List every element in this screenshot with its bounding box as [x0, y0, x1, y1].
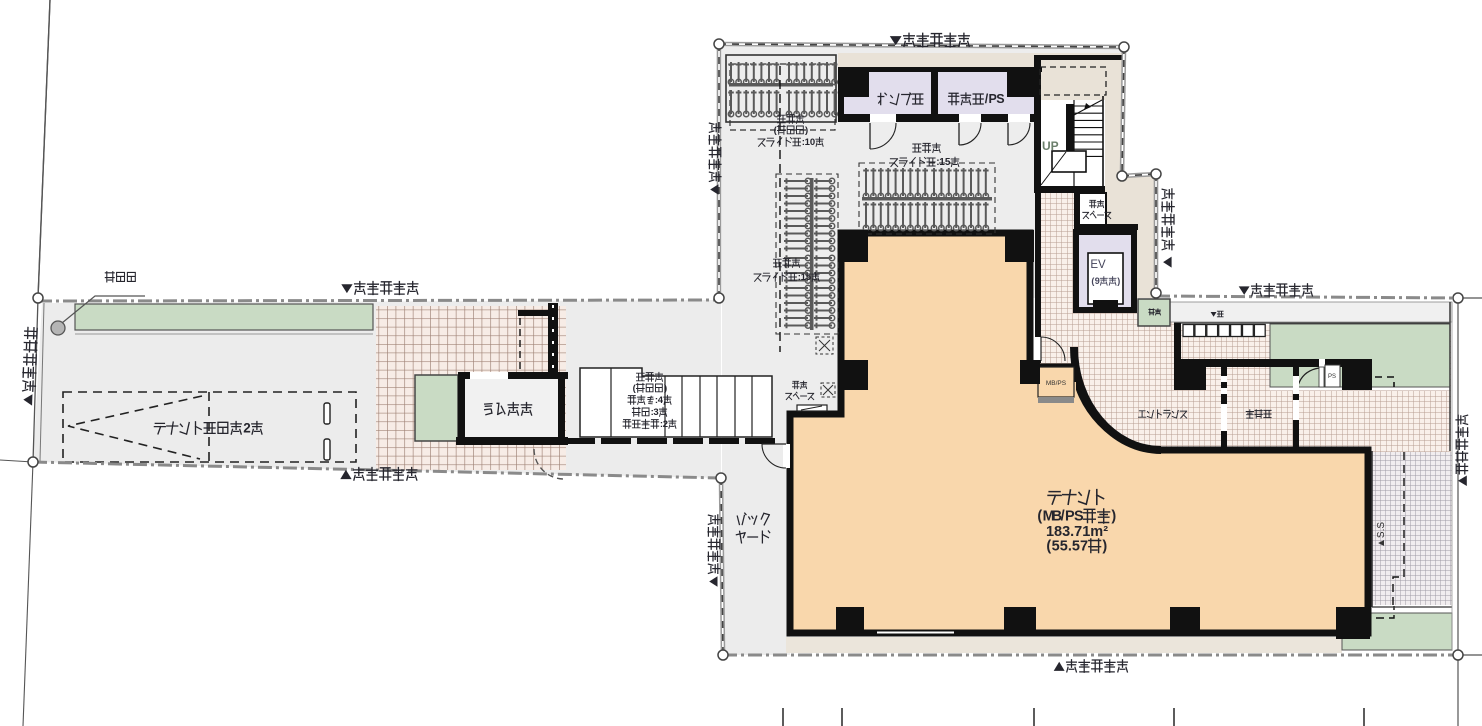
svg-text:5: 5 — [945, 157, 951, 168]
svg-text:5: 5 — [806, 272, 812, 283]
svg-text:5: 5 — [1072, 539, 1080, 555]
svg-text:3: 3 — [653, 407, 658, 418]
svg-text:7: 7 — [1080, 539, 1088, 555]
svg-text:MB/PS: MB/PS — [1046, 380, 1067, 387]
svg-text:5: 5 — [1060, 539, 1068, 555]
svg-text:): ) — [805, 125, 808, 136]
svg-text:S: S — [1074, 509, 1084, 525]
svg-text:5: 5 — [1052, 539, 1060, 555]
svg-text:): ) — [1102, 539, 1107, 555]
svg-text:PS: PS — [1328, 374, 1336, 380]
svg-text:): ) — [664, 383, 667, 394]
svg-text:0: 0 — [810, 137, 815, 148]
svg-text:UP: UP — [1042, 139, 1059, 153]
svg-text:▲S.S: ▲S.S — [1376, 522, 1387, 548]
svg-text:9: 9 — [1095, 276, 1100, 286]
svg-text:183.71m²: 183.71m² — [1046, 524, 1108, 540]
svg-text:S: S — [996, 92, 1004, 106]
svg-text:2: 2 — [243, 420, 251, 435]
svg-text:4: 4 — [658, 395, 664, 406]
svg-text:): ) — [1111, 509, 1116, 525]
svg-text:EV: EV — [1090, 259, 1106, 271]
svg-text:2: 2 — [663, 419, 668, 430]
svg-text:): ) — [1117, 276, 1120, 286]
